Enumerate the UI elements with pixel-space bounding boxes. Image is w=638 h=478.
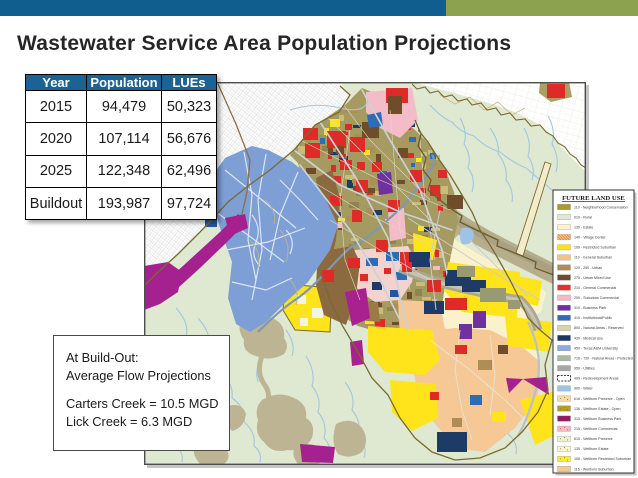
- svg-text:950 - Utilities: 950 - Utilities: [574, 367, 595, 371]
- svg-text:215 - Wellborn Commercial: 215 - Wellborn Commercial: [574, 427, 618, 431]
- svg-text:140 - Village Center: 140 - Village Center: [574, 236, 607, 240]
- svg-text:315 - Wellborn Business Park: 315 - Wellborn Business Park: [574, 417, 621, 421]
- svg-text:010 - Rural: 010 - Rural: [574, 215, 592, 219]
- svg-text:900 - Water: 900 - Water: [574, 387, 593, 391]
- svg-text:800 - Natural Areas - Reserved: 800 - Natural Areas - Reserved: [574, 326, 624, 330]
- svg-text:110 - General Suburban: 110 - General Suburban: [574, 256, 612, 260]
- svg-text:710 - 720 - Natural Areas - Pr: 710 - 720 - Natural Areas - Protected: [574, 357, 633, 361]
- svg-text:210 - General Commercial: 210 - General Commercial: [574, 286, 616, 290]
- svg-text:110 - Neighborhood Conservatio: 110 - Neighborhood Conservation: [574, 205, 628, 209]
- svg-text:108 - Wellborn Restricted Subu: 108 - Wellborn Restricted Suburban: [574, 457, 631, 461]
- svg-text:FUTURE LAND USE: FUTURE LAND USE: [562, 195, 625, 202]
- svg-text:200 - Suburban Commercial: 200 - Suburban Commercial: [574, 296, 619, 300]
- svg-text:115 - Wellborn Suburban: 115 - Wellborn Suburban: [574, 467, 614, 471]
- svg-text:450 - Texas A&M University: 450 - Texas A&M University: [574, 346, 618, 350]
- svg-text:430 - Medical Use: 430 - Medical Use: [574, 336, 603, 340]
- svg-text:136 - Wellborn Estate - Open: 136 - Wellborn Estate - Open: [574, 407, 620, 411]
- svg-text:310 - Business Park: 310 - Business Park: [574, 306, 606, 310]
- svg-text:616 - Wellborn Preserve - Open: 616 - Wellborn Preserve - Open: [574, 397, 625, 401]
- svg-text:120 - 250 - Urban: 120 - 250 - Urban: [574, 266, 602, 270]
- svg-text:615 - Wellborn Preserve: 615 - Wellborn Preserve: [574, 437, 613, 441]
- svg-text:130 - Estate: 130 - Estate: [574, 226, 593, 230]
- svg-text:410 - Institutional/Public: 410 - Institutional/Public: [574, 316, 612, 320]
- svg-text:135 - Wellborn Estate: 135 - Wellborn Estate: [574, 447, 609, 451]
- svg-text:499 - Redevelopment Areas: 499 - Redevelopment Areas: [574, 377, 619, 381]
- svg-text:275 - Urban Mixed Use: 275 - Urban Mixed Use: [574, 276, 611, 280]
- svg-text:109 - Restricted Suburban: 109 - Restricted Suburban: [574, 246, 616, 250]
